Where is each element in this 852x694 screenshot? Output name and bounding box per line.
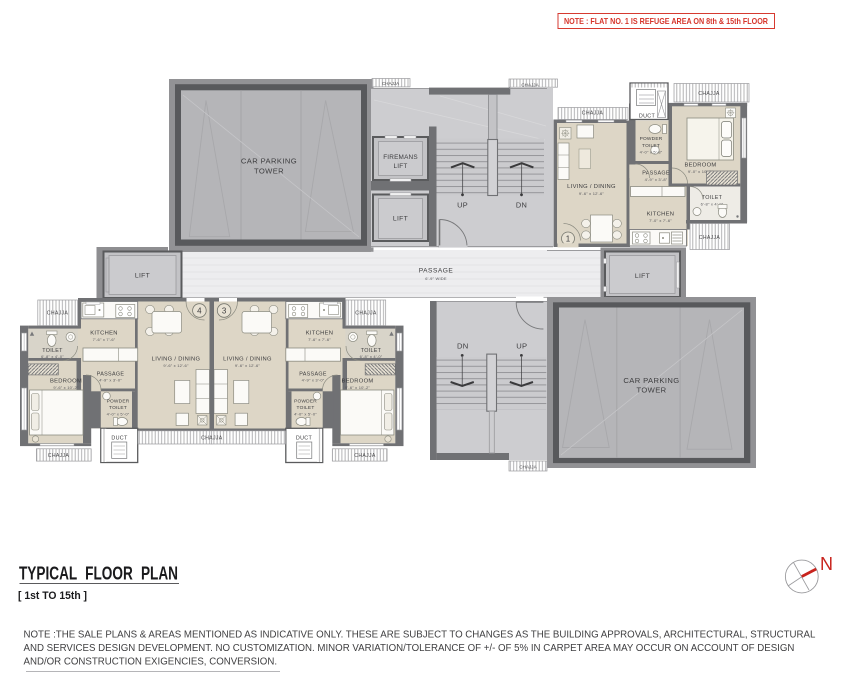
svg-text:9'-6" x 12'-6": 9'-6" x 12'-6" <box>235 363 261 368</box>
svg-text:7'-6" x 7'-6": 7'-6" x 7'-6" <box>93 337 116 342</box>
svg-text:CHAJJA: CHAJJA <box>355 311 377 317</box>
svg-text:DUCT: DUCT <box>111 436 128 442</box>
svg-text:LIFT: LIFT <box>393 216 408 223</box>
svg-text:DN: DN <box>516 201 527 210</box>
svg-text:CHAJJA: CHAJJA <box>519 465 537 470</box>
svg-text:LIVING / DINING: LIVING / DINING <box>567 184 616 190</box>
svg-text:PASSAGE: PASSAGE <box>642 171 670 177</box>
svg-text:CAR PARKING: CAR PARKING <box>241 157 297 166</box>
svg-text:CHAJJA: CHAJJA <box>521 83 539 88</box>
svg-text:9'-6" x 10'-2": 9'-6" x 10'-2" <box>53 385 79 390</box>
svg-text:DUCT: DUCT <box>296 436 313 442</box>
svg-text:LIFT: LIFT <box>135 273 150 280</box>
svg-text:LIFT: LIFT <box>394 163 408 170</box>
svg-text:6'-8" x 4'-0": 6'-8" x 4'-0" <box>41 354 64 359</box>
svg-text:NOTE :THE SALE PLANS & AREAS M: NOTE :THE SALE PLANS & AREAS MENTIONED A… <box>24 630 816 641</box>
svg-text:CHAJJA: CHAJJA <box>201 436 223 442</box>
svg-text:DUCT: DUCT <box>639 114 656 120</box>
svg-text:AND/OR CONSTRUCTION EXIGENCIES: AND/OR CONSTRUCTION EXIGENCIES, CONVERSI… <box>24 657 278 668</box>
svg-text:LIFT: LIFT <box>635 273 650 280</box>
svg-text:CHAJJA: CHAJJA <box>47 311 69 317</box>
svg-text:[ 1st TO 15th ]: [ 1st TO 15th ] <box>18 590 87 602</box>
svg-text:UP: UP <box>516 342 527 351</box>
svg-text:TOILET: TOILET <box>702 195 723 201</box>
svg-text:LIVING / DINING: LIVING / DINING <box>152 357 201 363</box>
svg-text:CAR PARKING: CAR PARKING <box>623 376 679 385</box>
svg-text:BEDROOM: BEDROOM <box>50 379 82 385</box>
svg-text:6'-9" WIDE: 6'-9" WIDE <box>425 276 447 281</box>
svg-text:KITCHEN: KITCHEN <box>306 331 334 337</box>
svg-text:CHAJJA: CHAJJA <box>382 81 400 86</box>
svg-text:9'-6" x 12'-6": 9'-6" x 12'-6" <box>163 363 189 368</box>
svg-text:FIREMANS: FIREMANS <box>383 154 418 161</box>
svg-text:TOWER: TOWER <box>636 386 666 395</box>
svg-text:6'-8" x 4'-0": 6'-8" x 4'-0" <box>360 354 383 359</box>
svg-text:7'-0" x 7'-6": 7'-0" x 7'-6" <box>649 218 672 223</box>
svg-text:LIVING / DINING: LIVING / DINING <box>223 357 272 363</box>
svg-text:POWDER: POWDER <box>640 136 663 142</box>
svg-text:4'-9" x 3'-0": 4'-9" x 3'-0" <box>302 378 325 383</box>
svg-text:CHAJJA: CHAJJA <box>699 235 721 241</box>
svg-text:POWDER: POWDER <box>107 399 130 405</box>
svg-text:TOILET: TOILET <box>109 405 127 411</box>
svg-text:POWDER: POWDER <box>294 399 317 405</box>
svg-text:DN: DN <box>457 342 469 351</box>
svg-text:PASSAGE: PASSAGE <box>419 268 454 275</box>
svg-text:AND SERVICES DESIGN DEVELOPME: AND SERVICES DESIGN DEVELOPMENT. NO CUST… <box>24 643 795 654</box>
svg-text:BEDROOM: BEDROOM <box>341 379 373 385</box>
svg-text:9'-6" x 12'-6": 9'-6" x 12'-6" <box>579 191 605 196</box>
svg-text:4'-0" x 5'-8": 4'-0" x 5'-8" <box>640 150 663 155</box>
svg-text:4'-9" x 3'-8": 4'-9" x 3'-8" <box>645 177 668 182</box>
svg-text:4'-0" x 5'-0": 4'-0" x 5'-0" <box>294 412 317 417</box>
svg-text:7'-6" x 7'-6": 7'-6" x 7'-6" <box>308 337 331 342</box>
svg-text:TOILET: TOILET <box>297 405 315 411</box>
svg-text:KITCHEN: KITCHEN <box>647 212 675 218</box>
svg-text:CHAJJA: CHAJJA <box>698 91 720 97</box>
svg-text:TOILET: TOILET <box>642 143 660 149</box>
svg-text:9'-6" x 10'-2": 9'-6" x 10'-2" <box>345 385 371 390</box>
svg-text:CHAJJA: CHAJJA <box>582 111 604 117</box>
svg-text:CHAJJA: CHAJJA <box>354 453 376 459</box>
svg-text:KITCHEN: KITCHEN <box>90 331 118 337</box>
svg-text:CHAJJA: CHAJJA <box>48 453 70 459</box>
svg-text:1: 1 <box>566 235 571 244</box>
svg-text:TYPICAL FLOOR PLAN: TYPICAL FLOOR PLAN <box>19 563 178 584</box>
svg-text:BEDROOM: BEDROOM <box>684 163 716 169</box>
svg-text:3: 3 <box>222 307 227 316</box>
svg-text:4'-0" x 5'-0": 4'-0" x 5'-0" <box>107 412 130 417</box>
svg-text:NOTE : FLAT NO. 1 IS REFUGE AR: NOTE : FLAT NO. 1 IS REFUGE AREA ON 8th … <box>564 17 768 26</box>
svg-text:4: 4 <box>197 307 202 316</box>
svg-text:4'-9" x 3'-0": 4'-9" x 3'-0" <box>99 378 122 383</box>
svg-text:TOWER: TOWER <box>254 167 284 176</box>
svg-text:N: N <box>820 554 833 574</box>
svg-text:UP: UP <box>457 201 468 210</box>
